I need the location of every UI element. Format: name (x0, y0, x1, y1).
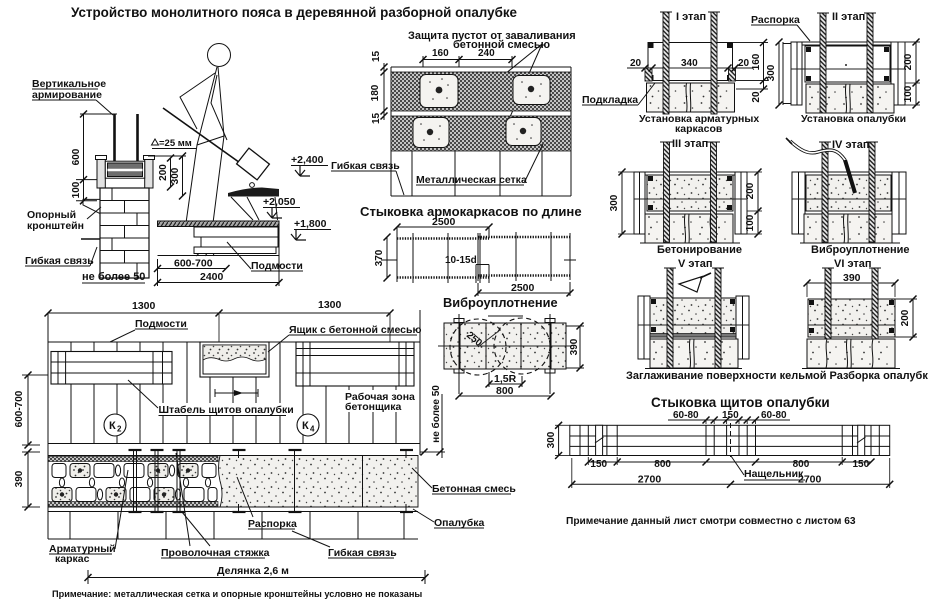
svg-text:600-700: 600-700 (174, 258, 213, 270)
svg-text:2700: 2700 (638, 474, 662, 486)
svg-text:10-15d: 10-15d (445, 255, 477, 266)
svg-text:Бетонирование: Бетонирование (657, 244, 742, 256)
svg-text:160: 160 (751, 53, 762, 70)
svg-text:VI этап: VI этап (834, 258, 872, 270)
svg-text:1300: 1300 (132, 300, 156, 312)
svg-text:не более 50: не более 50 (82, 271, 145, 283)
svg-text:Нащельник: Нащельник (744, 468, 804, 480)
svg-text:Распорка: Распорка (751, 14, 800, 26)
svg-text:кронштейн: кронштейн (27, 220, 84, 232)
svg-text:Подмости: Подмости (135, 318, 187, 330)
svg-text:200: 200 (745, 182, 756, 199)
svg-text:I этап: I этап (676, 11, 706, 23)
svg-text:1,5R: 1,5R (494, 373, 517, 385)
svg-text:Виброуплотнение: Виброуплотнение (811, 244, 910, 256)
svg-text:Устройство монолитного пояса в: Устройство монолитного пояса в деревянно… (71, 5, 517, 20)
svg-text:каркас: каркас (55, 553, 90, 565)
svg-text:Гибкая связь: Гибкая связь (331, 160, 400, 172)
svg-text:1300: 1300 (318, 299, 342, 311)
svg-text:300: 300 (546, 431, 557, 448)
svg-text:II этап: II этап (832, 11, 865, 23)
svg-text:Делянка 2,6 м: Делянка 2,6 м (217, 565, 289, 577)
svg-text:Виброуплотнение: Виброуплотнение (443, 295, 558, 310)
svg-text:200: 200 (903, 53, 914, 70)
svg-text:150: 150 (590, 459, 607, 470)
svg-text:Стыковка армокаркасов по длине: Стыковка армокаркасов по длине (360, 204, 582, 219)
svg-text:800: 800 (496, 385, 514, 397)
svg-text:300: 300 (766, 64, 777, 81)
svg-text:60-80: 60-80 (761, 410, 787, 421)
svg-text:каркасов: каркасов (675, 123, 723, 135)
svg-text:III этап: III этап (672, 138, 708, 150)
svg-text:200: 200 (900, 309, 911, 326)
svg-text:Подмости: Подмости (251, 260, 303, 272)
svg-text:Гибкая связь: Гибкая связь (328, 547, 397, 559)
svg-text:20: 20 (738, 58, 750, 69)
svg-text:+2,050: +2,050 (263, 196, 296, 208)
svg-text:600: 600 (71, 148, 82, 165)
svg-text:IV этап: IV этап (832, 139, 870, 151)
svg-text:370: 370 (374, 249, 385, 266)
svg-text:2700: 2700 (798, 474, 822, 486)
svg-text:Установка опалубки: Установка опалубки (801, 113, 906, 125)
svg-text:390: 390 (843, 272, 861, 284)
svg-text:100: 100 (71, 181, 82, 198)
svg-text:V этап: V этап (678, 258, 712, 270)
svg-text:Проволочная стяжка: Проволочная стяжка (161, 547, 270, 559)
svg-text:армирование: армирование (32, 89, 102, 101)
svg-text:Заглаживание поверхности кельм: Заглаживание поверхности кельмой Разборк… (626, 370, 928, 382)
svg-text:+1,800: +1,800 (294, 218, 327, 230)
svg-text:Примечание: металлическая сетк: Примечание: металлическая сетка и опорны… (52, 589, 422, 599)
svg-text:+2,400: +2,400 (291, 154, 324, 166)
svg-text:2: 2 (117, 425, 122, 434)
svg-text:20: 20 (751, 91, 762, 103)
svg-text:160: 160 (432, 48, 449, 59)
svg-text:бетонщика: бетонщика (345, 401, 402, 413)
svg-text:100: 100 (903, 85, 914, 102)
svg-text:Штабель щитов опалубки: Штабель щитов опалубки (159, 404, 294, 416)
svg-text:300: 300 (170, 167, 181, 184)
svg-text:390: 390 (14, 470, 25, 487)
svg-text:15: 15 (371, 50, 382, 62)
svg-text:15: 15 (371, 112, 382, 124)
svg-text:Бетонная смесь: Бетонная смесь (432, 483, 516, 495)
svg-text:Распорка: Распорка (248, 518, 297, 530)
svg-text:60-80: 60-80 (673, 410, 699, 421)
svg-text:390: 390 (569, 338, 580, 355)
svg-text:К: К (109, 420, 116, 432)
svg-text:180: 180 (370, 84, 381, 101)
svg-text:800: 800 (654, 459, 671, 470)
svg-text:К: К (302, 420, 309, 432)
svg-text:Гибкая связь: Гибкая связь (25, 255, 94, 267)
svg-text:100: 100 (745, 214, 756, 231)
svg-text:600-700: 600-700 (14, 390, 25, 427)
svg-text:Подкладка: Подкладка (582, 94, 638, 106)
svg-text:не более 50: не более 50 (430, 385, 442, 443)
svg-text:2500: 2500 (432, 216, 456, 228)
svg-text:150: 150 (722, 410, 739, 421)
svg-text:Опалубка: Опалубка (434, 517, 484, 529)
svg-text:Металлическая сетка: Металлическая сетка (416, 174, 527, 186)
svg-text:Стыковка щитов опалубки: Стыковка щитов опалубки (651, 395, 830, 410)
svg-text:20: 20 (630, 58, 642, 69)
svg-text:150: 150 (853, 459, 870, 470)
svg-text:=25 мм: =25 мм (159, 138, 192, 149)
svg-text:2400: 2400 (200, 271, 224, 283)
svg-text:4: 4 (310, 425, 315, 434)
svg-text:300: 300 (609, 194, 620, 211)
svg-text:200: 200 (158, 164, 169, 181)
svg-text:2500: 2500 (511, 282, 535, 294)
svg-text:240: 240 (478, 48, 495, 59)
svg-text:Примечание данный лист смотри: Примечание данный лист смотри совместно … (566, 516, 856, 527)
svg-text:Ящик с бетонной смесью: Ящик с бетонной смесью (289, 324, 421, 336)
svg-text:340: 340 (681, 58, 698, 69)
